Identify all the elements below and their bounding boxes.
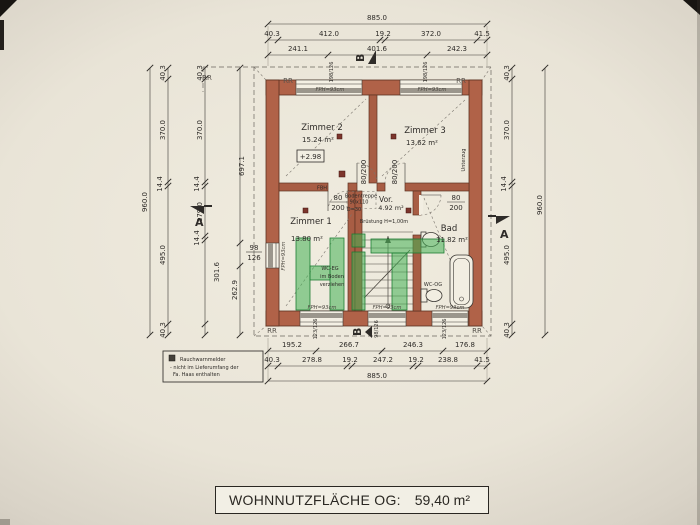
fph-bottom-mid: FPH=93cm (373, 305, 402, 311)
dim-li2: 370.0 (196, 120, 204, 140)
wc-eg-note-2: im Boden (320, 274, 344, 280)
dimension-chain-top: 885.0 40.3 412.0 19.2 372.0 41.5 241.1 4… (264, 14, 490, 66)
smoke-detector-legend-icon (169, 355, 175, 361)
room-area-vor: 4.92 m² (378, 204, 404, 212)
dim-bot2-7: 41.5 (474, 356, 490, 364)
dimension-chain-bottom: 195.2 266.7 246.3 176.8 40.3 278.8 19.2 … (264, 338, 490, 384)
dim-li5: 14.4 (193, 230, 201, 246)
dim-li3: 14.4 (193, 176, 201, 192)
rr-top-right: RR (456, 77, 466, 85)
door-z1-height: 200 (331, 204, 344, 212)
fbh-label: FBH (317, 186, 327, 192)
wc-eg-note-3: verziehen (320, 282, 345, 288)
dim-bot2-5: 19.2 (408, 356, 424, 364)
room-area-zimmer3: 13.62 m² (406, 139, 438, 147)
dim-top-overall: 885.0 (367, 14, 387, 22)
legend-line-3: Fa. Haas enthalten (173, 372, 220, 378)
room-area-zimmer1: 13.80 m² (291, 235, 323, 243)
legend-box: Rauchwarnmelder - nicht im Lieferumfang … (163, 351, 263, 382)
room-name-zimmer3: Zimmer 3 (404, 126, 446, 136)
section-b-bottom: B (351, 328, 364, 336)
door-z3-size: 80/200 (391, 160, 399, 185)
dim-bot2-1: 40.3 (264, 356, 280, 364)
door-z2-size: 80/200 (360, 160, 368, 185)
bodentreppe-label-3: D=30 (347, 207, 361, 213)
window-size-left-w: 98 (250, 244, 259, 252)
dim-r2: 370.0 (503, 120, 511, 140)
dim-r4: 495.0 (503, 245, 511, 265)
bodentreppe-label-2: 90x110 (350, 200, 369, 206)
fph-left: FPH=93cm (281, 242, 287, 271)
window-size-bottom-left: 123/126 (313, 319, 319, 340)
dim-bot1-3: 246.3 (403, 341, 423, 349)
room-area-bad: 11.82 m² (436, 236, 468, 244)
dimension-chain-right: 40.3 370.0 14.4 495.0 40.3 960.0 (500, 65, 548, 338)
dim-l5: 40.3 (159, 322, 167, 338)
room-name-bad: Bad (441, 224, 457, 234)
dim-r1: 40.3 (503, 65, 511, 81)
dim-bottom-overall: 885.0 (367, 372, 387, 380)
rr-top-left: RR (283, 77, 293, 85)
dim-top3-3: 242.3 (447, 45, 467, 53)
dimension-chain-left: 960.0 40.3 370.0 14.4 495.0 40.3 40.3 37… (141, 65, 246, 338)
toilet (421, 289, 442, 302)
window-zimmer1-left (266, 243, 279, 268)
dim-top2-1: 40.3 (264, 30, 280, 38)
dim-le2: 262.9 (231, 280, 239, 300)
section-a-right: A (500, 228, 509, 241)
window-size-top-right: 198/126 (423, 62, 429, 83)
dim-r3: 14.4 (500, 176, 508, 192)
title-block: WOHNNUTZFLÄCHE OG: 59,40 m² (215, 486, 489, 514)
dim-bot1-4: 176.8 (455, 341, 475, 349)
rr-bottom-left: RR (267, 327, 277, 335)
rr-bottom-right: RR (472, 327, 482, 335)
dim-li4: 179.0 (196, 202, 204, 222)
title-block-value: 59,40 m² (415, 492, 470, 508)
fph-bottom-right: FPH=93cm (436, 305, 465, 311)
dim-bot2-2: 278.8 (302, 356, 322, 364)
dim-bot1-2: 266.7 (339, 341, 359, 349)
dim-le1: 697.1 (238, 156, 246, 176)
bruestung-note: Brüstung H=1,00m (360, 219, 408, 225)
level-value: +2.98 (300, 153, 321, 161)
dim-top2-4: 372.0 (421, 30, 441, 38)
dim-top2-3: 19.2 (375, 30, 391, 38)
window-size-bottom-mid: 98/126 (374, 320, 380, 338)
fph-top-left: FPH=93cm (316, 87, 345, 93)
dim-l1: 40.3 (159, 65, 167, 81)
scanned-floor-plan-sheet: Zimmer 2 15.24 m² +2.98 Zimmer 3 13.62 m… (0, 0, 700, 525)
unterzug-label: Unterzug (461, 149, 467, 172)
window-size-left-h: 126 (247, 254, 261, 262)
dim-right-overall: 960.0 (536, 195, 544, 215)
window-zimmer1-bottom (300, 311, 343, 326)
dim-r5: 40.3 (503, 322, 511, 338)
window-size-top-left: 198/126 (329, 62, 335, 83)
dim-top2-2: 412.0 (319, 30, 339, 38)
dim-top3-2: 401.6 (367, 45, 388, 53)
dim-top2-5: 41.5 (474, 30, 490, 38)
dim-top3-1: 241.1 (288, 45, 308, 53)
room-name-zimmer1: Zimmer 1 (290, 217, 332, 227)
dim-bot2-4: 247.2 (373, 356, 393, 364)
door-bad-width: 80 (452, 194, 461, 202)
dim-li1: 40.3 (196, 65, 204, 81)
dim-bot1-1: 195.2 (282, 341, 302, 349)
floor-plan-drawing: Zimmer 2 15.24 m² +2.98 Zimmer 3 13.62 m… (0, 0, 700, 525)
fph-top-right: FPH=93cm (418, 87, 447, 93)
dim-l3: 14.4 (156, 176, 164, 192)
dim-bot2-3: 19.2 (342, 356, 358, 364)
level-marker: +2.98 (297, 150, 324, 162)
fph-bottom-left: FPH=93cm (308, 305, 337, 311)
room-name-vor: Vor. (379, 195, 393, 204)
room-name-zimmer2: Zimmer 2 (301, 123, 343, 133)
bathtub (450, 255, 473, 308)
door-z1-width: 80 (334, 194, 343, 202)
window-size-bottom-right: 123/126 (442, 319, 448, 340)
legend-line-1: Rauchwarnmelder (180, 357, 226, 363)
wc-og-label: WC-OG (424, 282, 442, 288)
dim-left-overall: 960.0 (141, 192, 149, 212)
dim-l2: 370.0 (159, 120, 167, 140)
dim-l4: 495.0 (159, 245, 167, 265)
door-bad-height: 200 (449, 204, 462, 212)
title-block-label: WOHNNUTZFLÄCHE OG: (229, 492, 401, 508)
window-bad-bottom (432, 311, 468, 326)
room-area-zimmer2: 15.24 m² (302, 136, 334, 144)
dim-li6: 301.6 (213, 261, 221, 282)
legend-line-2: - nicht im Lieferumfang der (170, 365, 239, 371)
wc-eg-note-1: WC-EG (321, 266, 338, 272)
dim-bot2-6: 238.8 (438, 356, 458, 364)
